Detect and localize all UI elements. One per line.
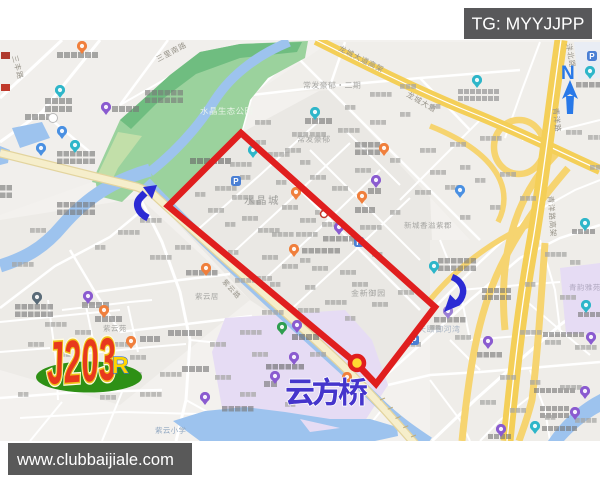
svg-text:N: N	[561, 63, 575, 84]
svg-text:TG: MYYJJPP: TG: MYYJJPP	[472, 14, 585, 34]
svg-text:P: P	[589, 52, 595, 61]
svg-text:P: P	[233, 177, 239, 186]
svg-text:R: R	[112, 352, 129, 378]
svg-text:J203: J203	[44, 326, 118, 398]
svg-text:www.clubbaijiale.com: www.clubbaijiale.com	[16, 451, 174, 469]
